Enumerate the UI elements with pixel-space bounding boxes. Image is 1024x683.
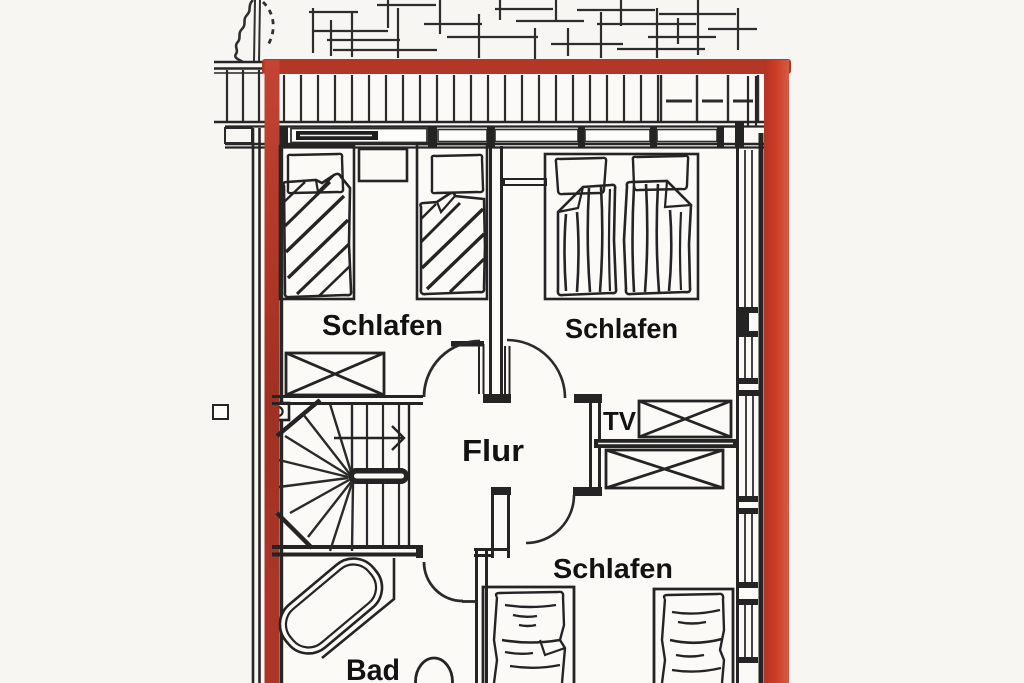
svg-text:Schlafen: Schlafen xyxy=(553,553,673,584)
svg-text:TV: TV xyxy=(603,406,637,436)
svg-text:Schlafen: Schlafen xyxy=(322,310,443,342)
svg-text:Bad: Bad xyxy=(346,654,400,683)
svg-text:Flur: Flur xyxy=(462,433,524,468)
svg-text:Schlafen: Schlafen xyxy=(565,313,678,344)
